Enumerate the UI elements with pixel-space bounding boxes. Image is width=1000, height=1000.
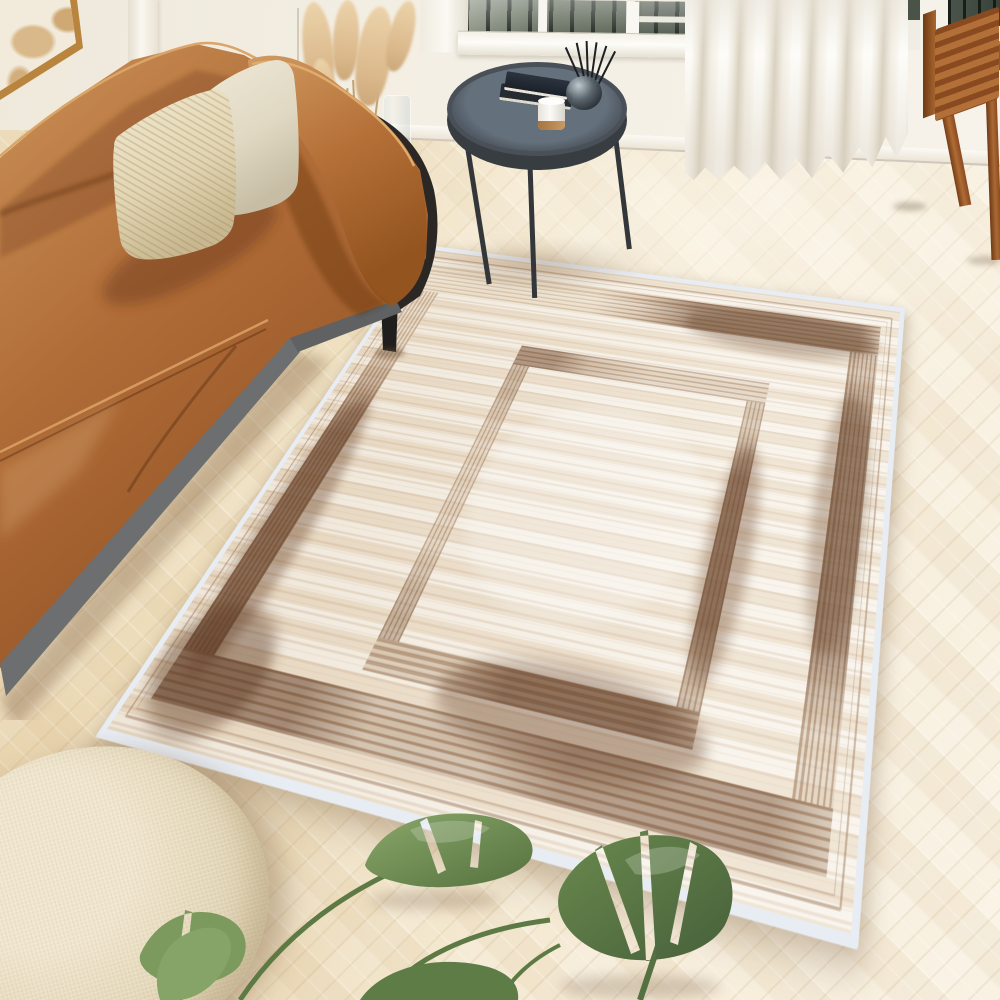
reed-diffuser-bottle [566,76,602,110]
monstera-plant [80,770,740,1000]
sheer-curtain [685,0,908,180]
monstera-leaf [360,962,518,1000]
candle-cup [538,100,565,130]
leather-sofa [0,0,460,720]
monstera-leaf [558,830,732,961]
window-left [420,0,696,60]
wood-chair [885,0,1000,280]
leaf-sheen [410,821,490,843]
sofa-leg-shadow [375,348,405,358]
living-room-photo [0,0,1000,1000]
chair-leg-shadow [893,202,927,211]
table-shadow [430,238,650,294]
